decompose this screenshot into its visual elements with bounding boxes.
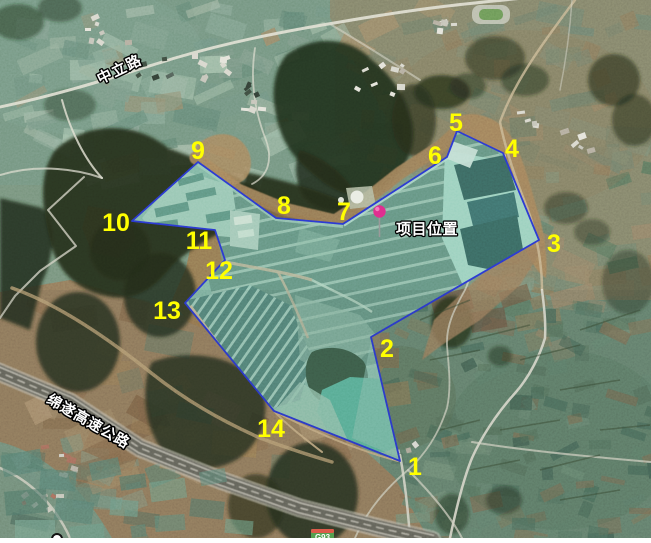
svg-text:G93: G93 — [315, 533, 331, 538]
svg-text:3: 3 — [547, 230, 561, 258]
svg-text:1: 1 — [408, 453, 422, 481]
svg-text:12: 12 — [205, 257, 233, 285]
svg-text:5: 5 — [449, 109, 463, 137]
svg-text:4: 4 — [505, 135, 519, 163]
svg-text:6: 6 — [428, 142, 442, 170]
svg-text:11: 11 — [186, 227, 213, 255]
svg-text:2: 2 — [380, 335, 394, 363]
svg-text:14: 14 — [257, 415, 285, 443]
svg-text:8: 8 — [277, 192, 291, 220]
svg-text:项目位置: 项目位置 — [396, 220, 458, 238]
svg-text:9: 9 — [191, 137, 205, 165]
svg-text:7: 7 — [337, 198, 351, 226]
svg-text:13: 13 — [153, 297, 181, 325]
svg-text:10: 10 — [102, 209, 130, 237]
